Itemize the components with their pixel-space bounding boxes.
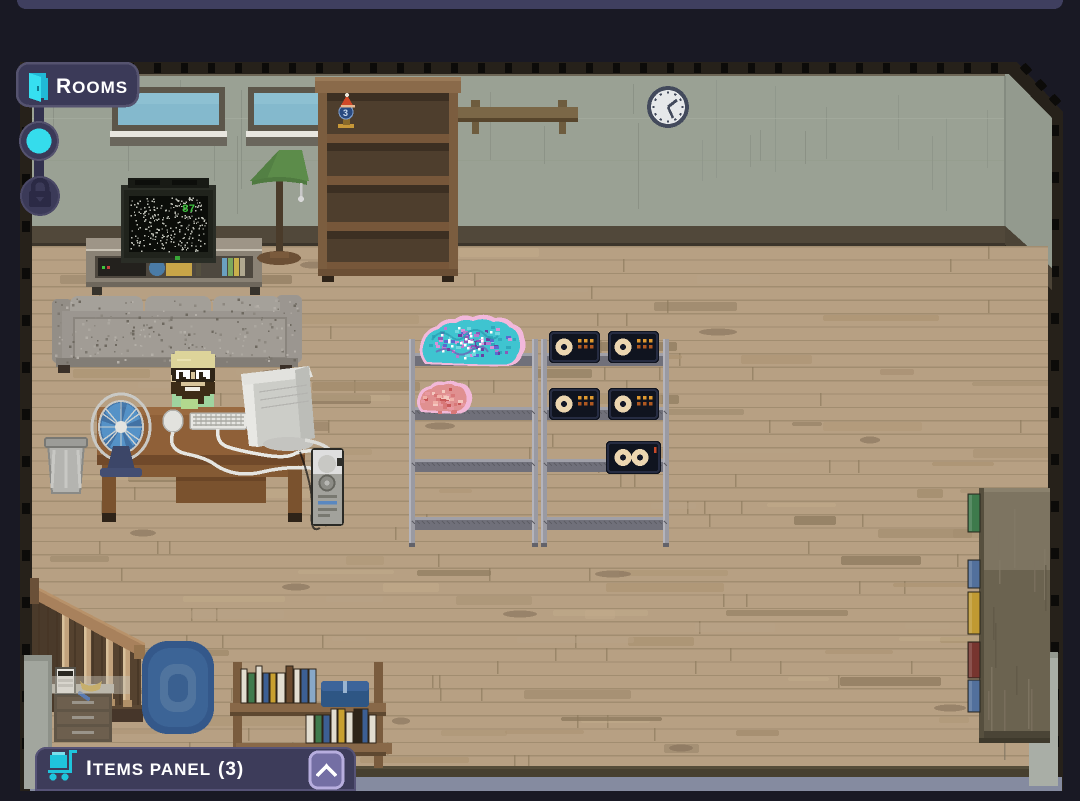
svg-text:3: 3	[343, 108, 348, 118]
svg-text:87: 87	[182, 204, 195, 216]
svg-text:ITEMS PANEL (3): ITEMS PANEL (3)	[86, 757, 244, 780]
svg-text:ROOMS: ROOMS	[56, 75, 128, 98]
